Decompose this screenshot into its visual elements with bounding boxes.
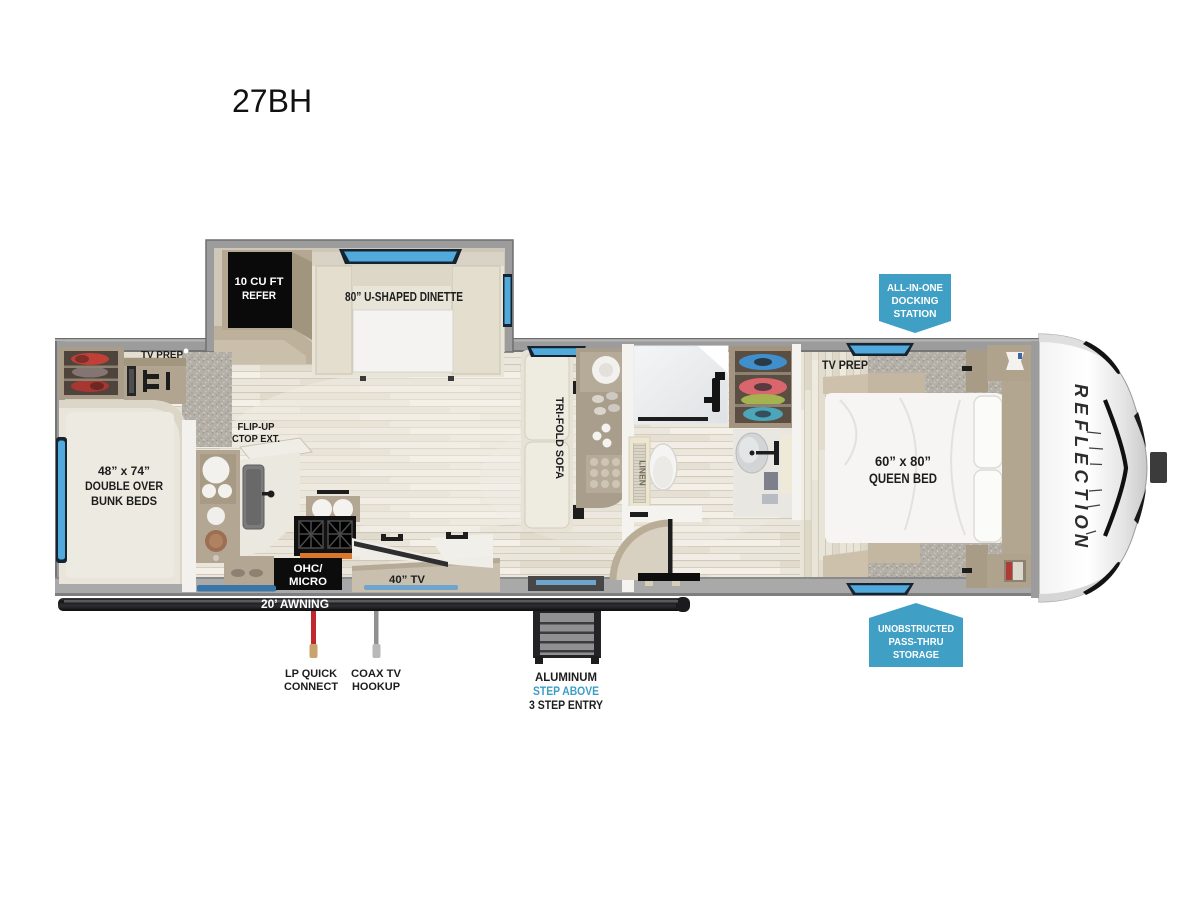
- svg-text:CTOP EXT.: CTOP EXT.: [232, 434, 280, 445]
- svg-text:HOOKUP: HOOKUP: [352, 681, 400, 693]
- svg-text:LP QUICK: LP QUICK: [285, 668, 337, 680]
- svg-text:27BH: 27BH: [232, 83, 312, 119]
- svg-text:DOCKING: DOCKING: [892, 296, 939, 307]
- svg-text:PASS-THRU: PASS-THRU: [889, 637, 944, 648]
- svg-text:48” x 74”: 48” x 74”: [98, 464, 150, 478]
- svg-text:TV PREP: TV PREP: [822, 360, 868, 372]
- svg-text:UNOBSTRUCTED: UNOBSTRUCTED: [878, 624, 954, 635]
- svg-text:REFER: REFER: [242, 290, 276, 302]
- svg-text:60” x 80”: 60” x 80”: [875, 454, 931, 469]
- svg-text:BUNK BEDS: BUNK BEDS: [91, 494, 157, 508]
- svg-text:STORAGE: STORAGE: [893, 650, 939, 661]
- svg-text:ALL-IN-ONE: ALL-IN-ONE: [887, 283, 943, 294]
- svg-text:TRI-FOLD SOFA: TRI-FOLD SOFA: [553, 397, 565, 479]
- svg-text:3 STEP ENTRY: 3 STEP ENTRY: [529, 700, 603, 712]
- svg-text:ALUMINUM: ALUMINUM: [535, 672, 597, 684]
- svg-text:80” U-SHAPED DINETTE: 80” U-SHAPED DINETTE: [345, 290, 463, 304]
- svg-text:CONNECT: CONNECT: [284, 681, 338, 693]
- svg-text:STEP ABOVE: STEP ABOVE: [533, 686, 599, 698]
- svg-text:REFLECTION: REFLECTION: [1071, 384, 1092, 552]
- svg-text:TV PREP: TV PREP: [141, 350, 183, 361]
- svg-text:20’ AWNING: 20’ AWNING: [261, 599, 329, 611]
- svg-text:MICRO: MICRO: [289, 576, 327, 588]
- svg-text:LINEN: LINEN: [638, 460, 648, 486]
- svg-text:QUEEN BED: QUEEN BED: [869, 471, 937, 486]
- svg-text:COAX TV: COAX TV: [351, 668, 402, 680]
- svg-text:DOUBLE OVER: DOUBLE OVER: [85, 479, 163, 493]
- svg-text:OHC/: OHC/: [294, 563, 323, 575]
- svg-text:FLIP-UP: FLIP-UP: [238, 422, 275, 433]
- svg-text:STATION: STATION: [894, 309, 937, 320]
- svg-text:40” TV: 40” TV: [389, 574, 426, 586]
- svg-text:10 CU FT: 10 CU FT: [235, 276, 284, 288]
